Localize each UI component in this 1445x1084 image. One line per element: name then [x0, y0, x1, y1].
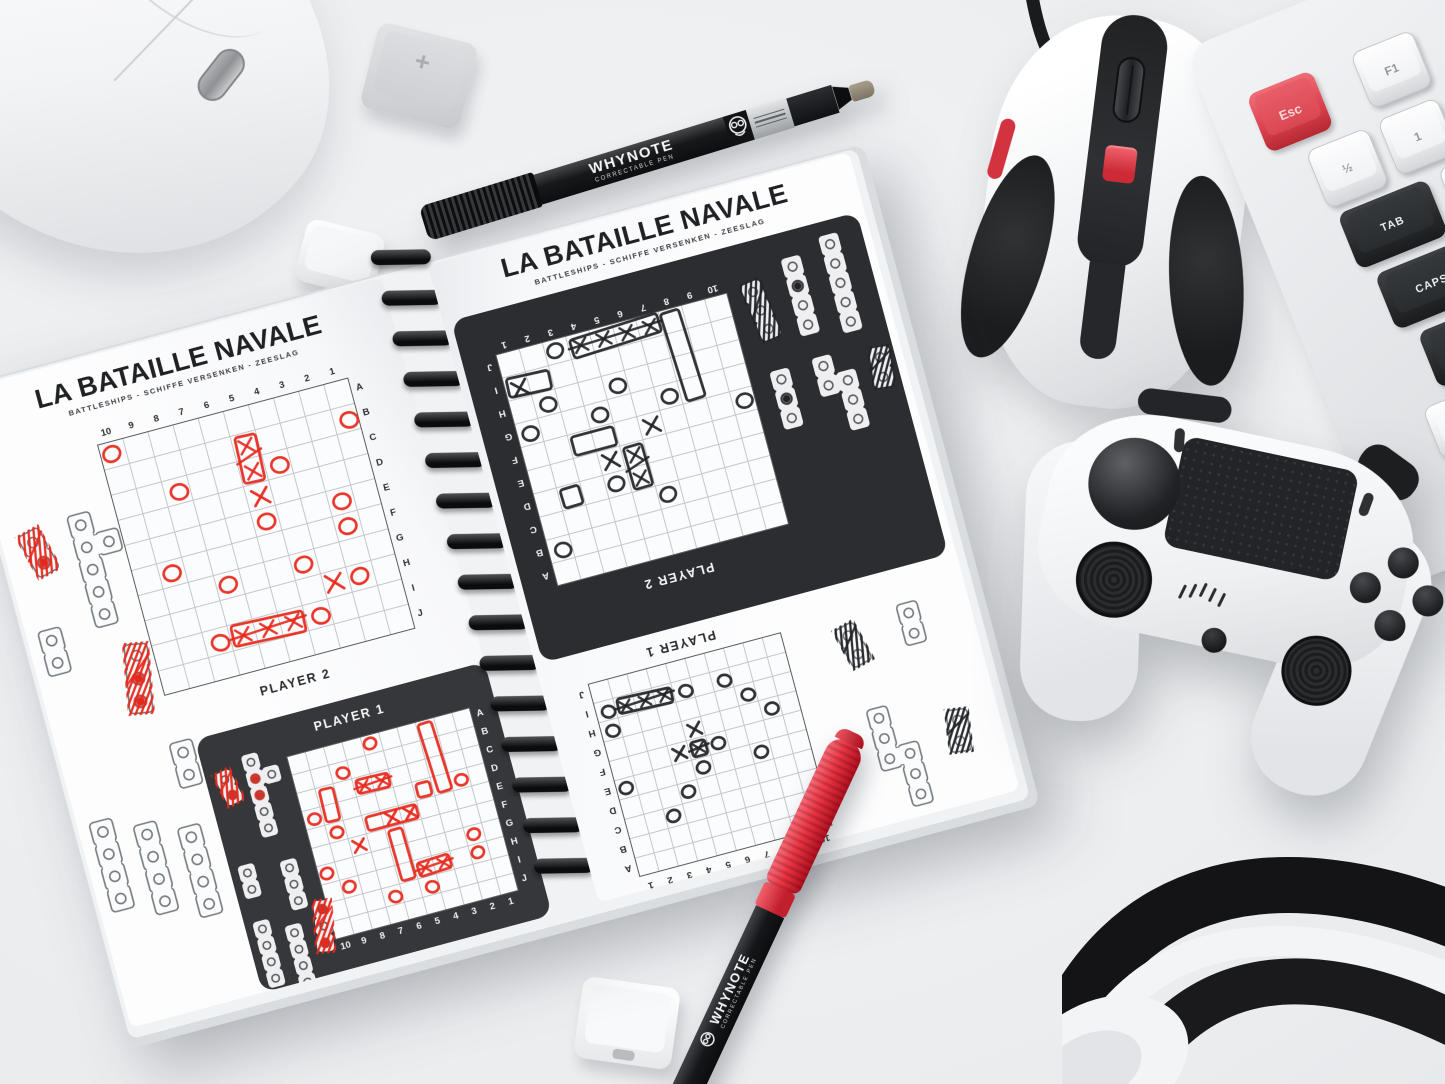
keycap-plus: +	[359, 21, 479, 131]
dpi-button	[1102, 145, 1138, 185]
keycap-blank	[573, 976, 681, 1071]
desk-scene: + WHYNOTE CORRECTABLE PEN Esc F1	[0, 0, 1445, 1084]
headphones	[1062, 830, 1445, 1084]
owl-logo-icon	[697, 1029, 722, 1052]
pen-body: WHYNOTE CORRECTABLE PEN	[672, 905, 784, 1084]
pen-grip	[419, 172, 543, 241]
pen-nib	[848, 78, 876, 101]
share-button	[1174, 428, 1186, 453]
